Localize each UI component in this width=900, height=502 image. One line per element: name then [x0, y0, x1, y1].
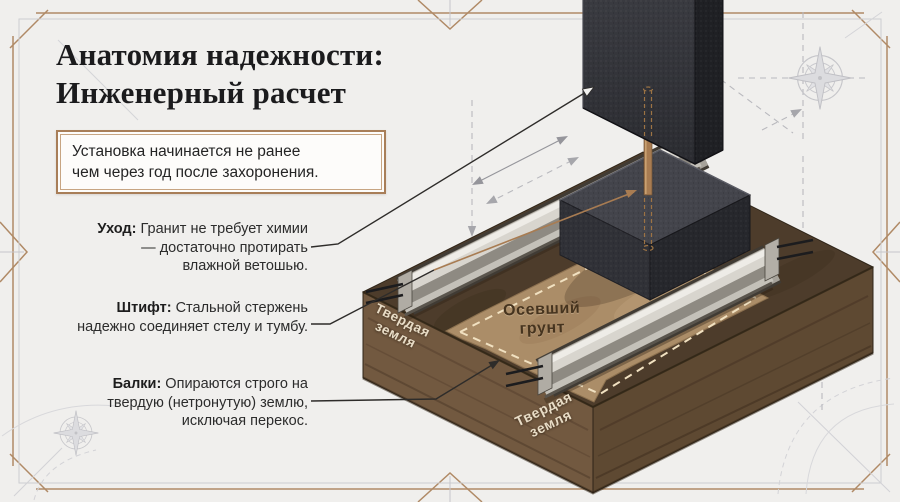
annotation-pin: Штифт: Стальной стержень надежно соединя… [70, 299, 308, 336]
compass-rose-top-right [789, 47, 852, 110]
beam-end-cap [765, 238, 779, 281]
label-settled-soil: Осевший грунт [491, 298, 592, 339]
install-notice: Установка начинается не ранее чем через … [56, 130, 386, 194]
construction-lines [472, 12, 866, 412]
beam-end-cap [398, 270, 412, 313]
annotation-beams: Балки: Опираются строго на твердую (нетр… [92, 375, 308, 431]
soil-block [363, 152, 873, 493]
dimension-arrows [468, 69, 852, 325]
page-title-line2: Инженерный расчет [56, 75, 346, 110]
pin-hidden-in-stela [644, 87, 653, 136]
steel-pin [643, 136, 653, 251]
beam-end-cap [538, 352, 552, 395]
label-hard-ground-left: Твердая земля [364, 300, 434, 356]
pedestal [560, 150, 750, 300]
stela [583, 0, 723, 164]
rebar-front-right [777, 240, 813, 259]
label-hard-ground-front: Твердая земля [510, 387, 583, 445]
leader-beams [311, 356, 502, 401]
stela-face-marker-dot [707, 69, 712, 74]
page-title-line1: Анатомия надежности: [56, 37, 384, 72]
pin-hidden-in-pedestal [643, 198, 653, 251]
concrete-beam-back [366, 134, 700, 319]
annotation-care: Уход: Гранит не требует химии — достаточ… [94, 220, 308, 276]
page-title: Анатомия надежности: Инженерный расчет [56, 36, 476, 112]
rebar-front-left [506, 366, 543, 386]
rebar-back [366, 284, 403, 303]
infographic-canvas: Анатомия надежности: Инженерный расчет У… [0, 0, 900, 502]
settled-soil [446, 192, 768, 402]
